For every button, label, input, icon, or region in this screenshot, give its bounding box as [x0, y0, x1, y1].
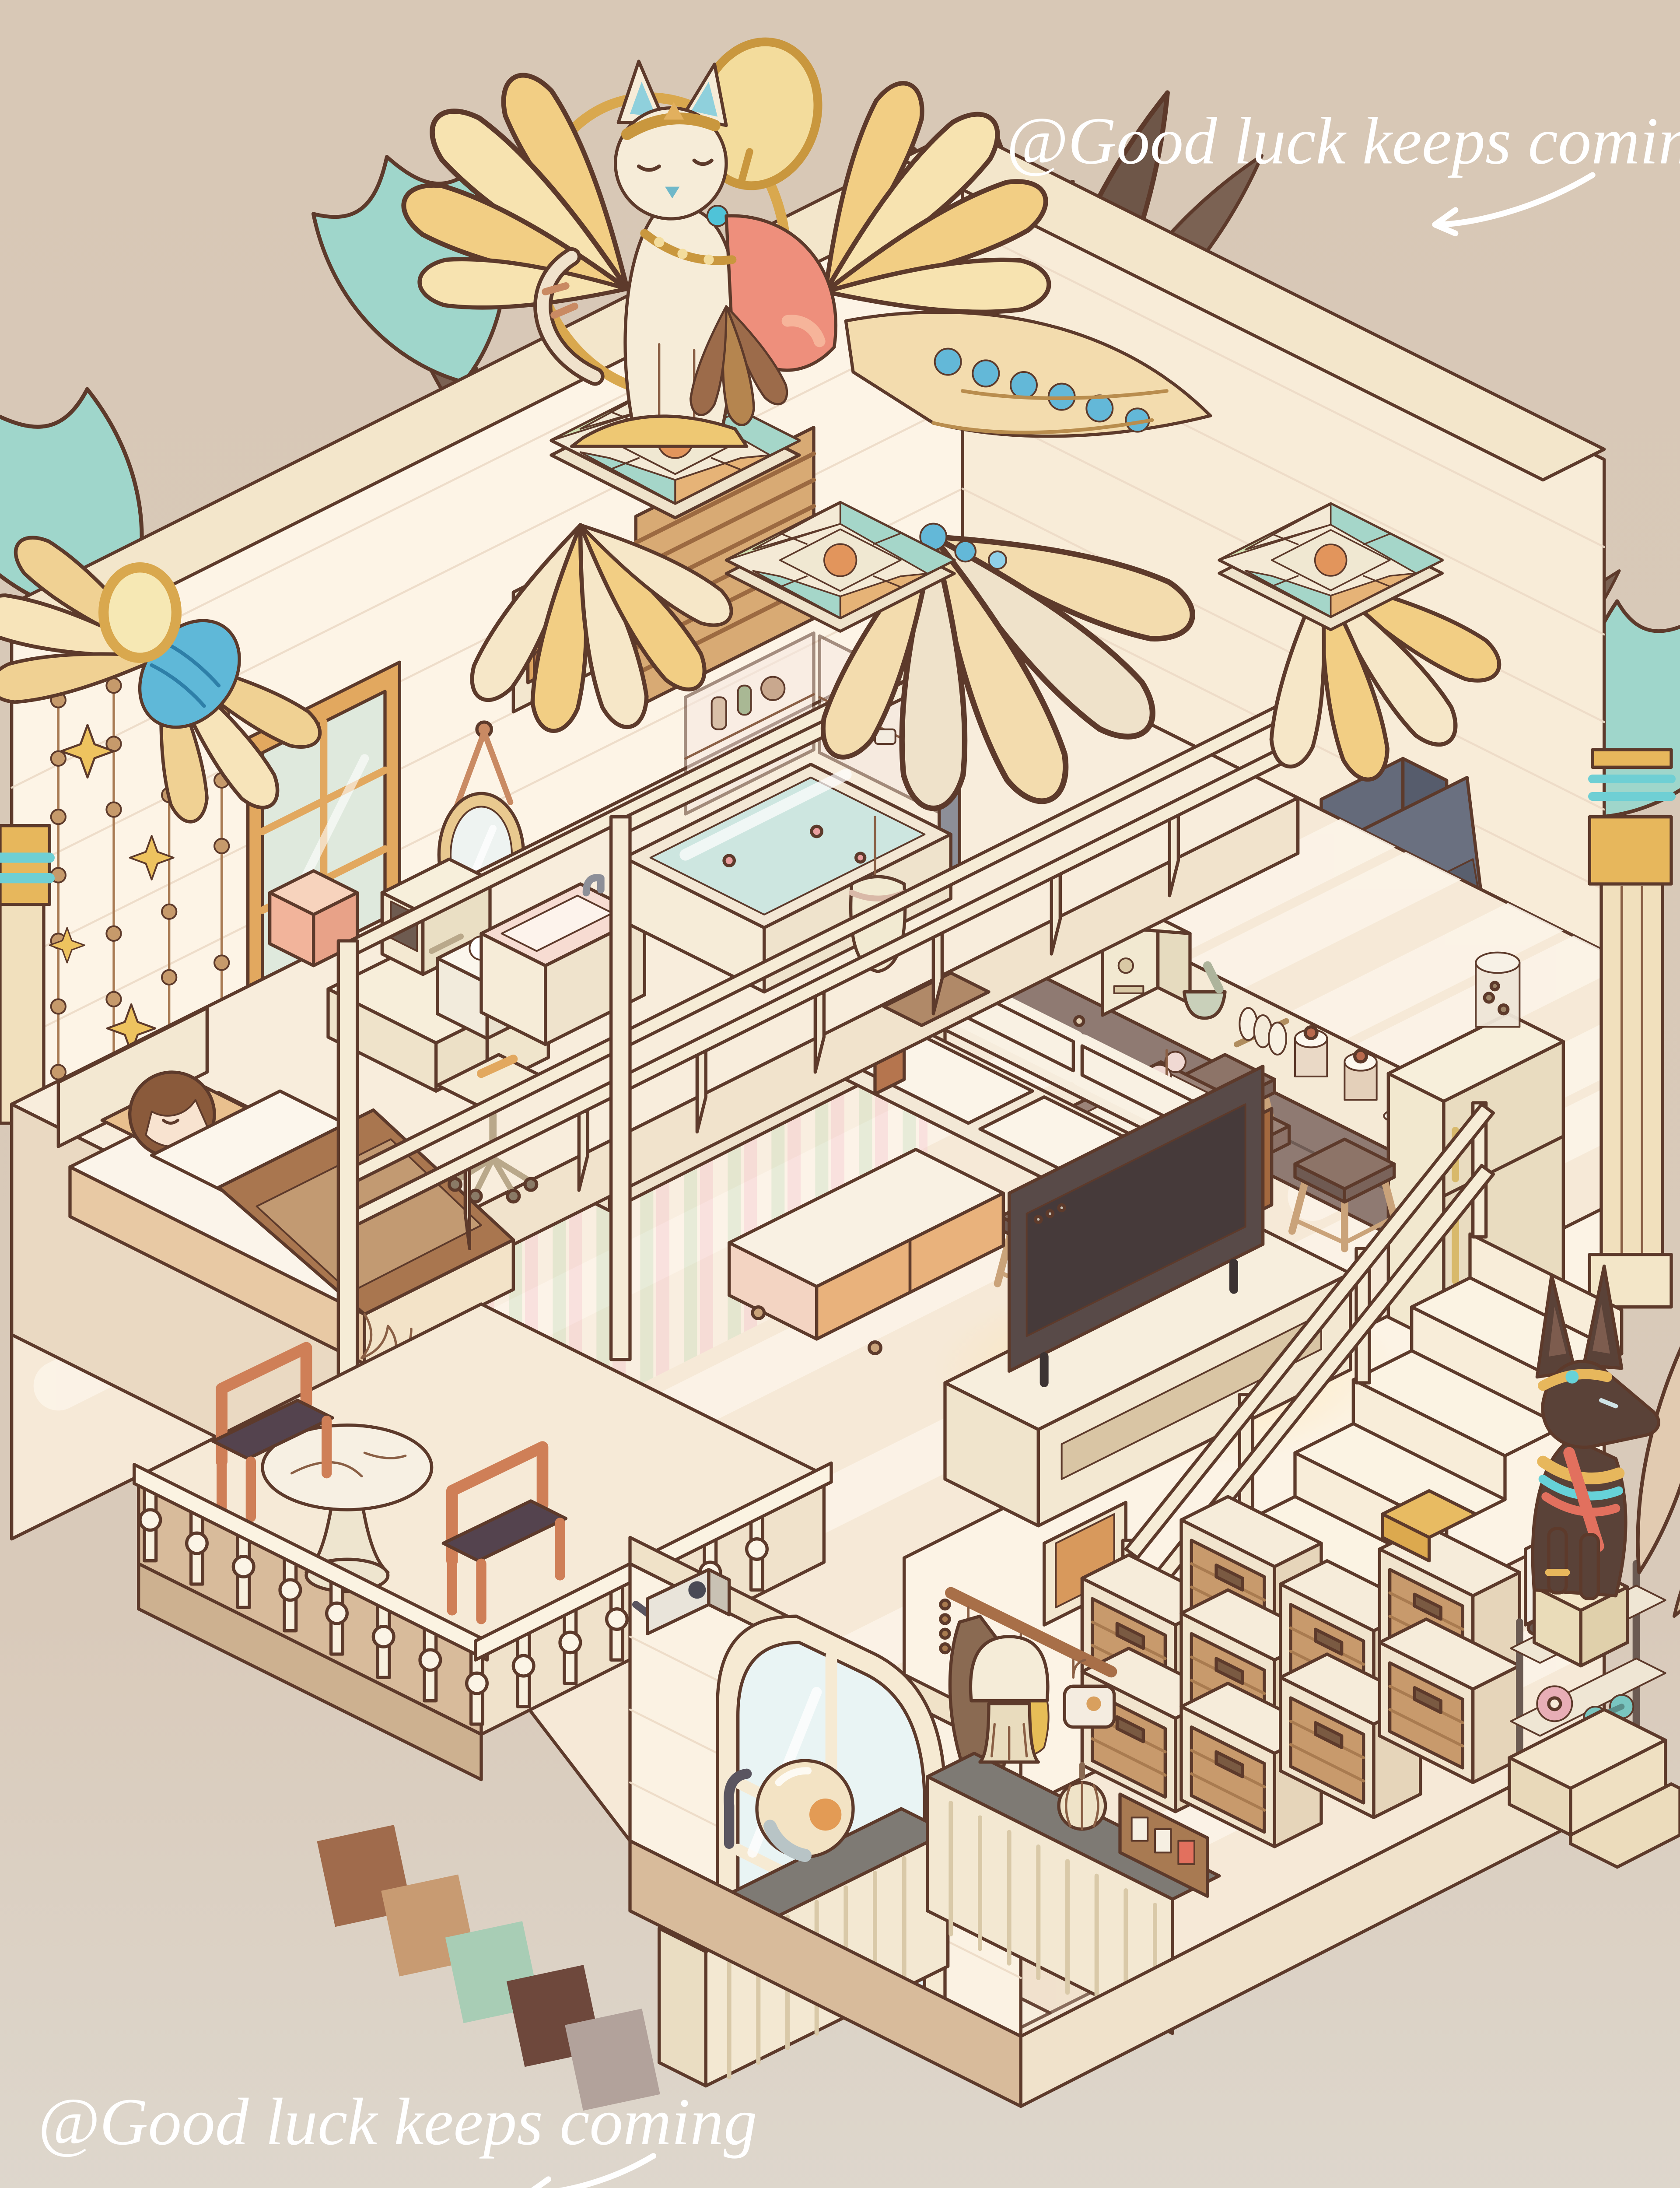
watermark-text: @Good luck keeps coming: [38, 2085, 757, 2159]
illustration-canvas: Z z: [0, 0, 1680, 2188]
watermark-text: @Good luck keeps coming: [1006, 104, 1680, 178]
storage-jar: [1476, 953, 1519, 1027]
illustration: Z z: [0, 0, 1680, 2188]
egyptian-column: [1589, 750, 1671, 1307]
helmet: [757, 1760, 853, 1857]
left-column-fragment: [0, 826, 49, 1123]
